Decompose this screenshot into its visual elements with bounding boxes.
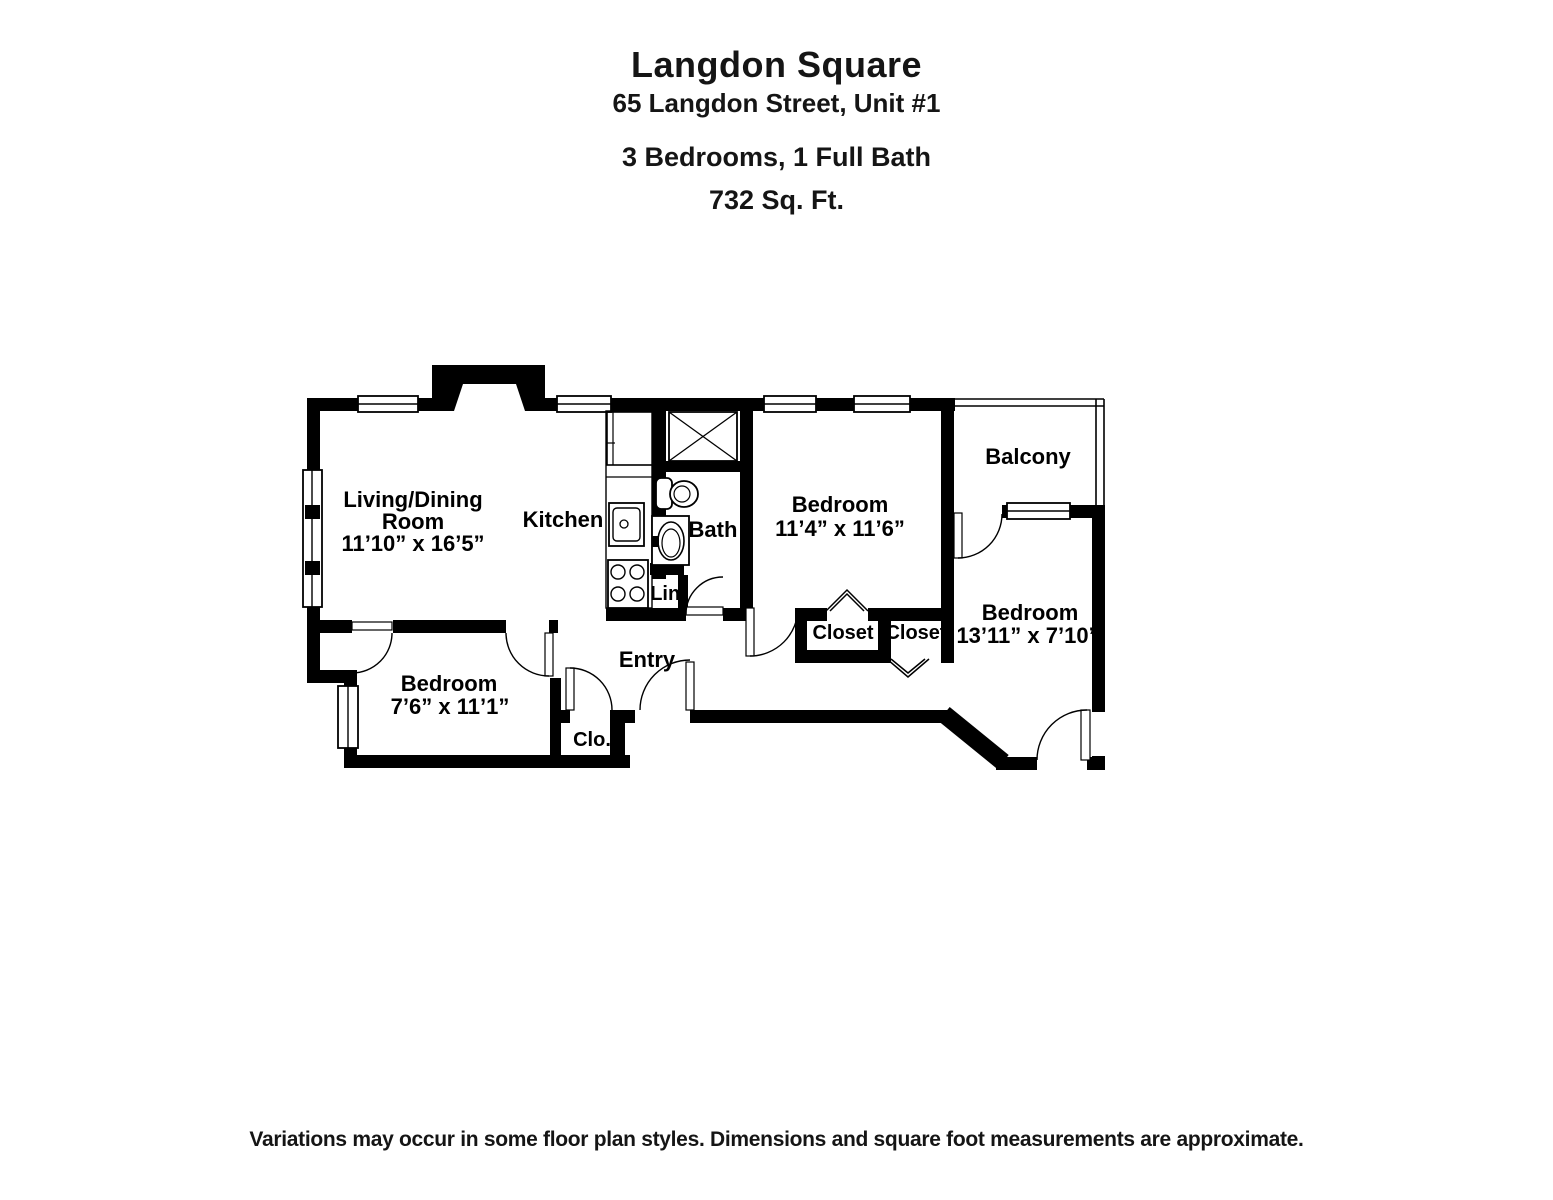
toilet xyxy=(656,478,698,509)
bedroom-door-opening xyxy=(1092,712,1105,756)
kitchen-cabinet xyxy=(606,412,653,477)
wall-segment xyxy=(740,411,753,608)
wall-segment xyxy=(307,398,320,474)
wall-segment xyxy=(666,461,740,472)
wall-segment xyxy=(996,757,1037,770)
window xyxy=(338,686,358,748)
room-dims-bedroom-middle: 11’4” x 11’6” xyxy=(775,516,905,541)
door xyxy=(506,633,553,676)
window xyxy=(764,396,816,412)
room-label-kitchen: Kitchen xyxy=(523,507,604,532)
room-label-bedroom-middle: Bedroom xyxy=(792,492,889,517)
wall-segment xyxy=(606,608,686,621)
room-label-bath: Bath xyxy=(689,517,738,542)
room-dims-bedroom-right: 13’11” x 7’10” xyxy=(956,623,1099,648)
door xyxy=(954,513,1002,558)
wall-segment xyxy=(690,710,952,723)
door xyxy=(746,608,798,656)
bathroom-sink xyxy=(652,516,689,565)
wall-segment xyxy=(344,755,630,768)
room-label-entry: Entry xyxy=(619,647,676,672)
bifold-door xyxy=(887,659,929,677)
room-label-closet-b: Closet xyxy=(885,622,946,644)
window xyxy=(1007,503,1070,519)
kitchen-sink xyxy=(609,503,644,546)
wall-segment xyxy=(393,620,506,633)
fireplace-firebox xyxy=(454,384,525,411)
floor-plan-page: { "header": { "building_name": "Langdon … xyxy=(0,0,1553,1200)
wall-segment xyxy=(795,650,890,663)
room-label-balcony: Balcony xyxy=(985,444,1071,469)
window xyxy=(854,396,910,412)
kitchen-fixtures xyxy=(606,411,653,608)
shower xyxy=(669,412,737,461)
faucet xyxy=(652,536,659,547)
door xyxy=(352,622,392,673)
room-label-entry-closet: Clo. xyxy=(573,729,611,751)
room-label-closet-a: Closet xyxy=(812,622,873,644)
door xyxy=(1037,710,1090,760)
wall-segment xyxy=(610,710,635,723)
wall-segment xyxy=(307,620,352,633)
wall-segment xyxy=(550,710,570,723)
wall-diagonal xyxy=(944,714,1003,762)
room-label-bedroom-right: Bedroom xyxy=(982,600,1079,625)
window xyxy=(557,396,611,412)
wall-segment xyxy=(549,620,558,633)
room-label-linen: Lin. xyxy=(650,583,686,605)
floor-plan-drawing: Living/Dining Room 11’10” x 16’5” Kitche… xyxy=(0,0,1553,1200)
door xyxy=(686,577,723,615)
room-dims-living: 11’10” x 16’5” xyxy=(341,531,484,556)
window xyxy=(303,470,322,607)
stove xyxy=(608,560,648,608)
bifold-door xyxy=(826,590,868,611)
room-dims-bedroom-lower: 7’6” x 11’1” xyxy=(391,694,510,719)
room-label-bedroom-lower: Bedroom xyxy=(401,671,498,696)
room-labels: Living/Dining Room 11’10” x 16’5” Kitche… xyxy=(341,444,1099,751)
door xyxy=(566,668,612,710)
window xyxy=(358,396,418,412)
